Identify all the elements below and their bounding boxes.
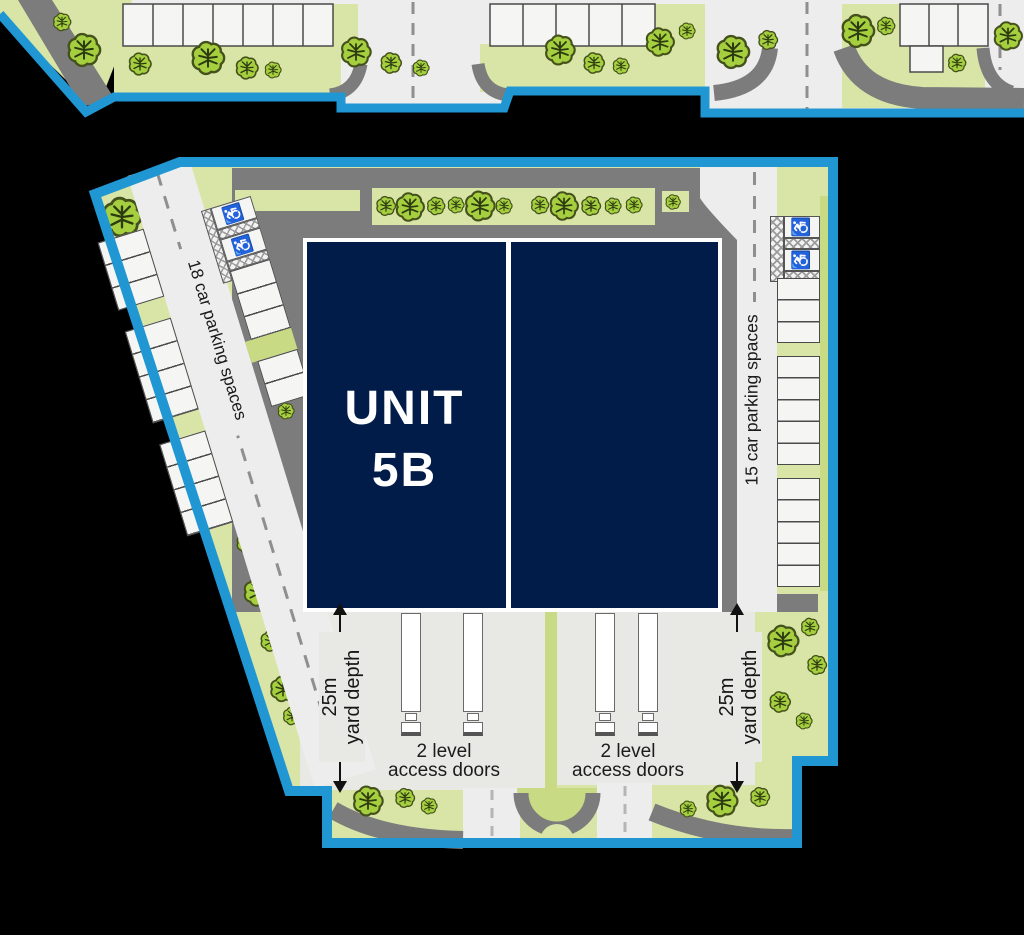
- parking-bay-group: [777, 478, 820, 587]
- truck-trailer: [463, 613, 483, 712]
- yard-depth-label-right: 25m yard depth: [716, 632, 762, 762]
- access-doors-line2: access doors: [369, 761, 519, 780]
- building-name: UNIT 5B: [303, 378, 506, 502]
- truck-trailer: [401, 613, 421, 712]
- yard-depth-label-left: 25m yard depth: [319, 632, 365, 762]
- truck: [638, 613, 658, 736]
- disabled-bay-hatch: [784, 238, 820, 249]
- access-doors-line2: access doors: [553, 761, 703, 780]
- north-road-strip: [0, 0, 1024, 113]
- access-doors-label-right: 2 level access doors: [553, 742, 703, 780]
- parking-bay-group: [777, 278, 820, 343]
- truck: [595, 613, 615, 736]
- truck-cab: [463, 722, 483, 736]
- unit-divider-wall: [506, 238, 511, 612]
- road-centerline: [753, 172, 756, 302]
- truck-hitch: [599, 713, 611, 721]
- access-doors-label-left: 2 level access doors: [369, 742, 519, 780]
- yard-depth-line1: 25m: [716, 632, 739, 762]
- truck: [401, 613, 421, 736]
- truck-cab: [401, 722, 421, 736]
- building-name-line1: UNIT: [303, 378, 506, 440]
- building-name-line2: 5B: [303, 440, 506, 502]
- wheelchair-icon: ♿: [792, 249, 812, 270]
- truck-hitch: [642, 713, 654, 721]
- yard-depth-line2: yard depth: [342, 632, 365, 762]
- truck-trailer: [638, 613, 658, 712]
- building-unit-5b: UNIT 5B: [303, 238, 722, 612]
- access-doors-line1: 2 level: [553, 742, 703, 761]
- truck-hitch: [467, 713, 479, 721]
- yard-depth-line2: yard depth: [739, 632, 762, 762]
- site-plan: ♿ ♿ 18 car parking spaces ♿ ♿ 15 car par…: [0, 0, 1024, 935]
- parking-bay-group: [777, 356, 820, 465]
- truck: [463, 613, 483, 736]
- disabled-bay-hatch: [770, 216, 784, 282]
- wheelchair-icon: ♿: [792, 216, 812, 237]
- right-parking-label: 15 car parking spaces: [741, 303, 765, 498]
- yard-depth-line1: 25m: [319, 632, 342, 762]
- disabled-parking-bay: ♿: [784, 249, 820, 271]
- truck-hitch: [405, 713, 417, 721]
- truck-cab: [595, 722, 615, 736]
- disabled-parking-bay: ♿: [784, 216, 820, 238]
- truck-cab: [638, 722, 658, 736]
- truck-trailer: [595, 613, 615, 712]
- access-doors-line1: 2 level: [369, 742, 519, 761]
